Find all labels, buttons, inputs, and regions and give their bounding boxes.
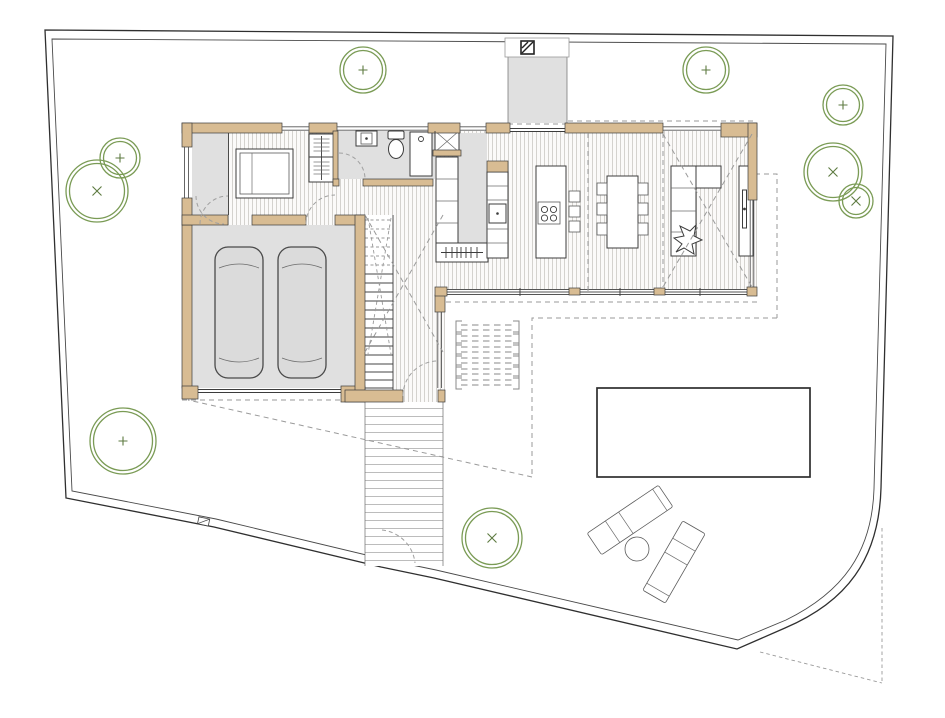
tree-plus-mark <box>839 101 848 110</box>
tree <box>66 160 128 222</box>
side-table <box>625 537 649 561</box>
floor-plan-page <box>0 0 945 718</box>
washbasin-vanity <box>356 131 377 146</box>
entry-hall-floor <box>192 133 228 225</box>
front-door <box>510 129 565 132</box>
car <box>278 247 326 378</box>
gate-meter-symbol <box>521 41 534 54</box>
toilet <box>388 131 404 159</box>
car <box>215 247 263 378</box>
pergola-row <box>456 354 519 367</box>
dining-chair <box>638 223 648 235</box>
floor-plan-drawing <box>0 0 945 718</box>
boundary-outer-line <box>45 30 893 649</box>
bar-stool <box>569 191 580 202</box>
dining-chair <box>597 203 607 215</box>
tree-x-mark <box>93 187 102 196</box>
north-entry-path <box>505 38 569 123</box>
south-walkway <box>365 402 443 566</box>
tree-plus-mark <box>119 437 128 446</box>
tree-plus-mark <box>702 66 711 75</box>
pergola-row <box>456 321 519 334</box>
pergola-row <box>456 332 519 345</box>
glass-wall-south <box>447 288 747 296</box>
pergola-steps-dashed <box>456 321 519 389</box>
tree <box>100 138 140 178</box>
original-corner-dashed <box>760 528 882 683</box>
bar-stool <box>569 221 580 232</box>
wardrobe <box>309 134 334 182</box>
lounge-chair <box>643 521 706 603</box>
kitchen-island <box>536 166 566 258</box>
staircase <box>365 215 393 398</box>
tree <box>804 143 862 201</box>
washing-machine <box>410 132 432 176</box>
dining-chair <box>597 183 607 195</box>
dining-chair <box>638 183 648 195</box>
tree-x-mark <box>852 197 861 206</box>
shower <box>435 131 459 152</box>
entry-path-paving <box>508 56 567 123</box>
dining-chair <box>597 223 607 235</box>
pergola-row <box>456 365 519 378</box>
closet-cabinets <box>436 157 458 243</box>
cooktop <box>538 202 560 224</box>
stair-run <box>365 215 393 398</box>
outdoor-loungers <box>587 485 705 603</box>
bar-stool <box>569 206 580 217</box>
oven <box>489 204 506 223</box>
tree-plus-mark <box>116 154 125 163</box>
gate-recess <box>505 38 569 57</box>
walkway-steps <box>365 402 443 566</box>
tree <box>90 408 156 474</box>
tree <box>823 85 863 125</box>
dining-table <box>607 176 638 248</box>
tree <box>462 508 522 568</box>
swimming-pool <box>597 388 810 477</box>
pergola-row <box>456 343 519 356</box>
tree-plus-mark <box>359 66 368 75</box>
pergola-row <box>456 376 519 389</box>
garage-door <box>198 390 341 393</box>
tree <box>683 47 729 93</box>
tree <box>340 47 386 93</box>
coat-rack <box>436 243 488 262</box>
tree-x-mark <box>488 534 497 543</box>
entry-niche-floor <box>458 133 487 243</box>
dining-chair <box>638 203 648 215</box>
tree-x-mark <box>829 168 838 177</box>
property-boundary <box>45 30 893 683</box>
